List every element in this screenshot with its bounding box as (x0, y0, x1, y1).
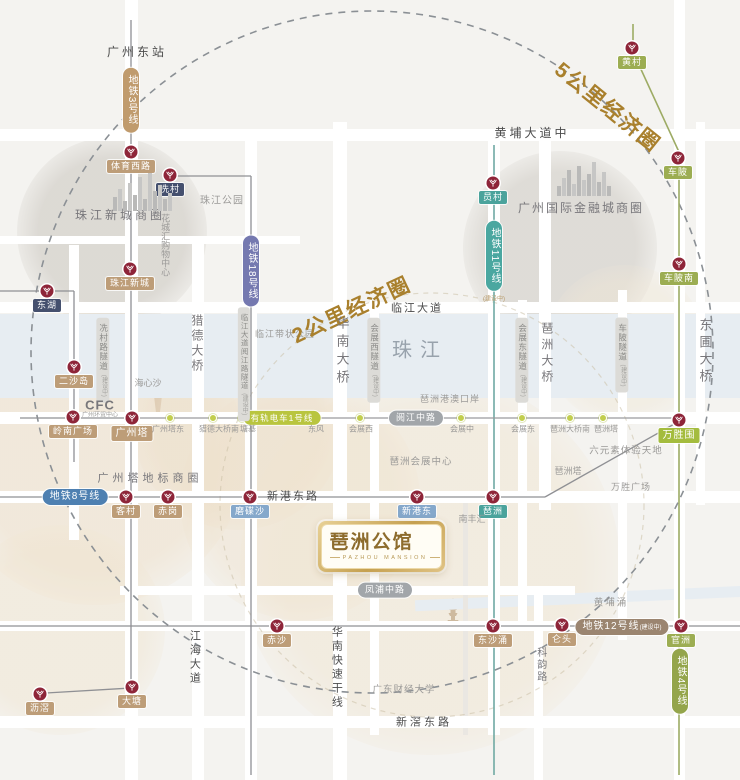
map-text: 5公里经济圈 (549, 58, 664, 158)
skyline-bar (168, 193, 172, 211)
station-marker (487, 620, 500, 633)
station-marker (626, 42, 639, 55)
station-label: 沥滘 (26, 702, 54, 716)
map-text: 猎德大桥 (189, 314, 203, 374)
skyline-bar (597, 182, 601, 196)
skyline-bar (138, 177, 142, 211)
station-label: 仑头 (548, 633, 576, 647)
station-label: 岭南广场 (49, 425, 97, 439)
project-logo-frame: 琶洲公馆 PAZHOU MANSION (321, 524, 442, 569)
tram-stop-dot (566, 414, 574, 422)
map-text: 六元素体验天地 (589, 447, 663, 458)
map-text: 广州国际金融城商圈 (518, 202, 644, 216)
map-text: 万胜广场 (611, 482, 651, 492)
map-text: 琶洲塔 (554, 466, 581, 476)
skyline-bar (577, 166, 581, 196)
map-text: 黄埔大道中 (494, 127, 569, 141)
tram-stop-dot (166, 414, 174, 422)
map-text: 华南大桥 (334, 316, 349, 388)
skyline-bar (557, 186, 561, 196)
map-text: 广州塔地标商圈 (98, 473, 203, 486)
metro-logo-icon (558, 621, 567, 630)
station-marker (162, 491, 175, 504)
station-marker (126, 681, 139, 694)
map-text: 江海大道 (188, 630, 201, 686)
metro-logo-icon (128, 683, 137, 692)
metro-logo-icon (43, 287, 52, 296)
station-label: 员村 (479, 191, 507, 205)
tram-stop-dot (457, 414, 465, 422)
map-text: 琶洲会展中心 (389, 458, 452, 469)
tunnel-pill: 会展西隧道(建设中) (367, 318, 380, 403)
metro-logo-icon (674, 154, 683, 163)
map-text: 广州环贸中心 (82, 413, 118, 420)
line-pill: 凤浦中路 (358, 583, 412, 598)
metro-logo-icon (675, 416, 684, 425)
station-marker (673, 258, 686, 271)
skyline-bar (592, 162, 596, 196)
station-marker (124, 263, 137, 276)
map-text: 南丰汇 (458, 514, 485, 524)
line-pill: 有轨电车1号线 (244, 411, 321, 425)
station-marker (120, 491, 133, 504)
project-name: 琶洲公馆 (330, 533, 441, 552)
under-construction-note: (建设中) (640, 625, 662, 631)
road-vertical (696, 122, 705, 505)
tram-stop-dot (518, 414, 526, 422)
line-pill: 地铁18号线 (243, 235, 259, 306)
under-construction-note: (建设中) (241, 393, 247, 415)
line-pill: 阅江中路 (389, 411, 443, 426)
station-marker (34, 688, 47, 701)
map-text: 华南快速干线 (330, 626, 343, 710)
skyline-bar (582, 180, 586, 196)
skyline-bar (123, 201, 127, 211)
metro-logo-icon (126, 265, 135, 274)
city-skyline-icon (557, 162, 611, 196)
map-text: 会展西 (349, 424, 373, 433)
city-skyline-icon (113, 173, 172, 211)
tunnel-pill: 冼村路隧道(建设中) (96, 318, 109, 403)
map-text: 东风 (308, 424, 324, 433)
station-marker (271, 620, 284, 633)
metro-logo-icon (128, 414, 137, 423)
metro-logo-icon (675, 260, 684, 269)
metro-logo-icon (489, 179, 498, 188)
skyline-bar (143, 199, 147, 211)
tunnel-pill: 临江大道阅江路隧道(建设中) (238, 307, 250, 421)
map-text: 黄埔涌 (594, 599, 629, 610)
project-logo-text: 琶洲公馆 PAZHOU MANSION (330, 533, 441, 561)
skyline-bar (128, 183, 132, 211)
road-horizontal (120, 586, 575, 595)
map-text: 科韵路 (534, 647, 546, 683)
metro-logo-icon (36, 690, 45, 699)
skyline-bar (153, 191, 157, 211)
station-label: 广州塔 (112, 426, 153, 441)
skyline-bar (587, 174, 591, 196)
skyline-bar (148, 173, 152, 211)
skyline-bar (163, 199, 167, 211)
line-pill: 地铁3号线 (123, 68, 139, 133)
road-vertical (534, 588, 543, 780)
station-label: 二沙岛 (55, 375, 93, 389)
station-label: 珠江新城 (106, 277, 154, 291)
map-text: 海心沙 (134, 378, 161, 388)
metro-logo-icon (70, 363, 79, 372)
station-label: 车陂 (664, 166, 692, 180)
project-name-en: PAZHOU MANSION (330, 555, 441, 561)
station-marker (125, 146, 138, 159)
line-pill: 地铁12号线(建设中) (575, 619, 668, 635)
skyline-bar (118, 189, 122, 211)
metro-logo-icon (628, 44, 637, 53)
metro-logo-icon (273, 622, 282, 631)
tram-stop-dot (209, 414, 217, 422)
station-marker (673, 414, 686, 427)
skyline-bar (602, 172, 606, 196)
station-label: 体育西路 (107, 160, 155, 174)
metro-logo-icon (246, 493, 255, 502)
road-vertical (245, 130, 257, 780)
station-label: 客村 (112, 505, 140, 519)
road-horizontal (0, 491, 740, 503)
station-marker (411, 491, 424, 504)
under-construction-note: (建设中) (101, 374, 107, 396)
metro-logo-icon (489, 622, 498, 631)
map-text: 琶洲大桥 (539, 322, 553, 386)
tunnel-pill: 车陂隧道(建设中) (615, 318, 628, 393)
station-label: 车陂南 (660, 272, 698, 286)
station-label: 磨碟沙 (231, 505, 269, 519)
skyline-bar (113, 197, 117, 211)
road-vertical (463, 497, 468, 735)
map-text: 猎德大桥南 (199, 424, 239, 433)
station-marker (672, 152, 685, 165)
skyline-bar (607, 186, 611, 196)
station-label: 大塘 (118, 695, 146, 709)
map-text: 广东财经大学 (372, 686, 435, 697)
map-text: 广州东站 (107, 46, 167, 60)
station-label: 新港东 (398, 505, 436, 519)
metro-logo-icon (677, 622, 686, 631)
map-text: 临江大道 (391, 303, 443, 316)
metro-logo-icon (164, 493, 173, 502)
under-construction-note: (建设中) (372, 374, 378, 396)
station-label: 东沙涌 (474, 634, 512, 648)
map-text: 琶洲大桥南 (550, 424, 590, 433)
map-text: 珠江公园 (200, 195, 244, 207)
under-construction-note: (建设中) (483, 297, 505, 304)
under-construction-note: (建设中) (620, 365, 626, 387)
station-label: 赤岗 (154, 505, 182, 519)
map-text: 新港东路 (267, 491, 319, 504)
map-text: 广州塔东 (152, 424, 184, 433)
station-marker (68, 361, 81, 374)
station-marker (244, 491, 257, 504)
station-marker (67, 411, 80, 424)
station-label: 赤沙 (263, 634, 291, 648)
station-label: 官洲 (667, 634, 695, 648)
metro-logo-icon (127, 148, 136, 157)
map-text: 新滘东路 (396, 717, 452, 730)
map-text: 塘基 (240, 424, 256, 433)
location-map: 体育西路冼村珠江新城东湖二沙岛岭南广场广州塔员村黄村车陂车陂南万胜围客村赤岗磨碟… (0, 0, 740, 780)
under-construction-note: (建设中) (520, 374, 526, 396)
metro-logo-icon (69, 413, 78, 422)
station-marker (126, 412, 139, 425)
road-horizontal (0, 716, 740, 728)
metro-logo-icon (489, 493, 498, 502)
station-marker (41, 285, 54, 298)
station-marker (556, 619, 569, 632)
map-text: CFC (85, 399, 115, 414)
skyline-bar (133, 195, 137, 211)
station-label: 东湖 (33, 299, 61, 313)
map-text: 珠江 (392, 340, 448, 363)
map-text: 东圃大桥 (697, 318, 712, 386)
station-marker (675, 620, 688, 633)
skyline-bar (562, 178, 566, 196)
tunnel-pill: 会展东隧道(建设中) (515, 318, 528, 403)
station-label: 万胜围 (659, 428, 700, 443)
skyline-bar (158, 185, 162, 211)
map-text: 花城汇购物中心 (160, 214, 170, 277)
tram-stop-dot (599, 414, 607, 422)
skyline-bar (572, 184, 576, 196)
map-text: 琶洲港澳口岸 (420, 394, 480, 404)
line-pill: 地铁8号线 (43, 489, 108, 505)
map-text: 珠江新城商圈 (75, 209, 165, 223)
project-logo: 琶洲公馆 PAZHOU MANSION (318, 521, 445, 572)
tram-stop-dot (356, 414, 364, 422)
map-text: 会展东 (511, 424, 535, 433)
map-text: 会展中 (450, 424, 474, 433)
station-marker (487, 491, 500, 504)
map-text: 琶洲塔 (594, 424, 618, 433)
station-marker (487, 177, 500, 190)
road-vertical (539, 128, 551, 510)
skyline-bar (567, 170, 571, 196)
metro-logo-icon (122, 493, 131, 502)
metro-logo-icon (413, 493, 422, 502)
line-pill: 地铁4号线 (672, 649, 688, 714)
station-label: 黄村 (618, 56, 646, 70)
line-pill: 地铁11号线 (486, 221, 502, 291)
